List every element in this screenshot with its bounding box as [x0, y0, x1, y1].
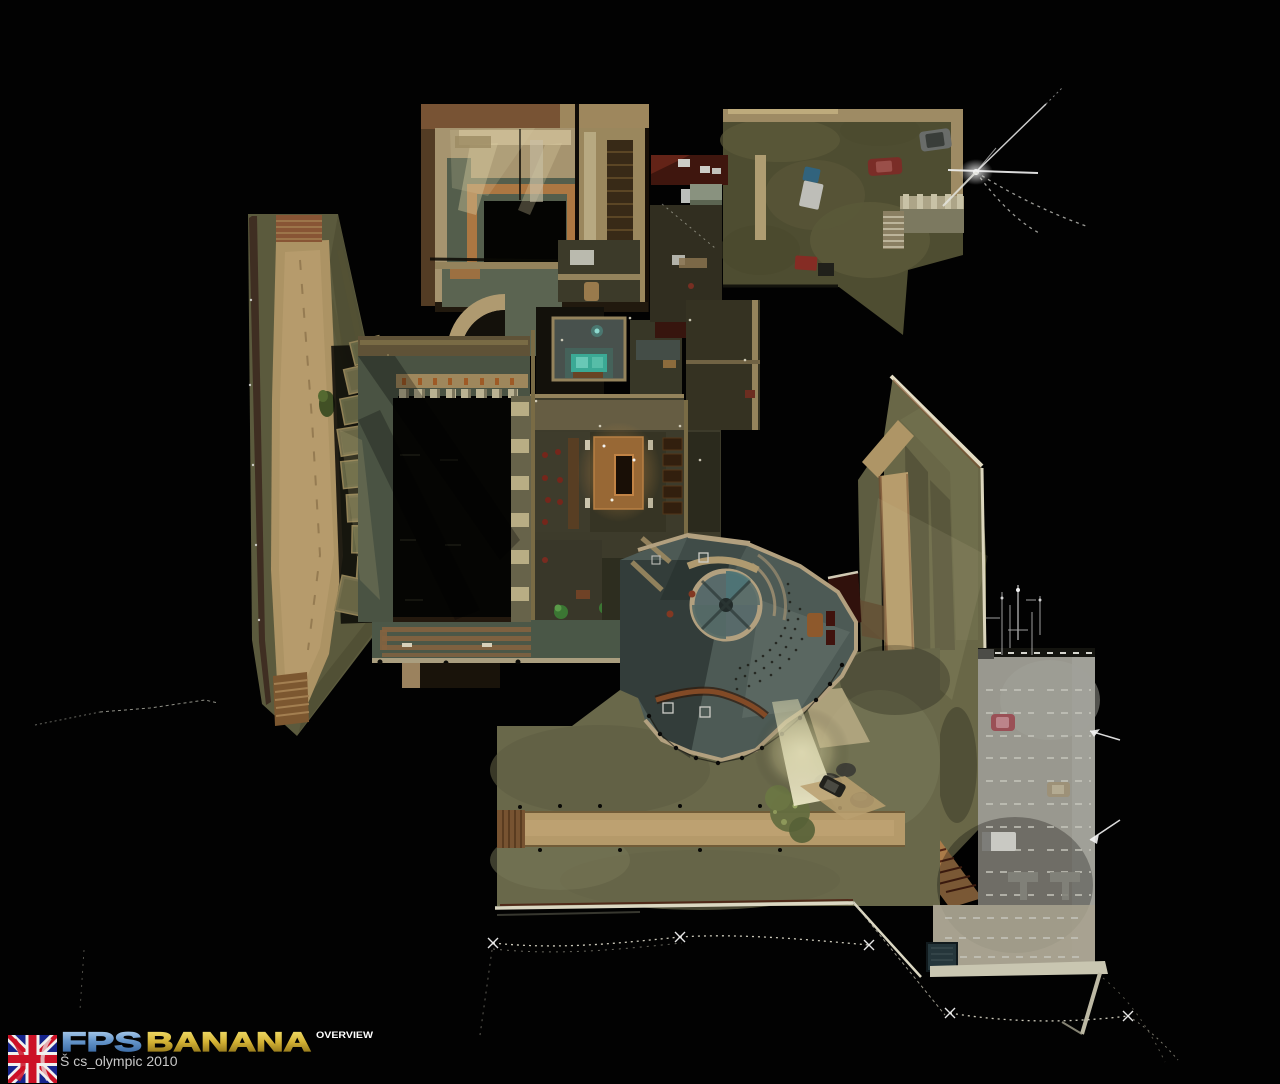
- svg-text:OVERVIEW: OVERVIEW: [316, 1030, 374, 1040]
- svg-text:Š cs_olympic 2010: Š cs_olympic 2010: [60, 1053, 178, 1069]
